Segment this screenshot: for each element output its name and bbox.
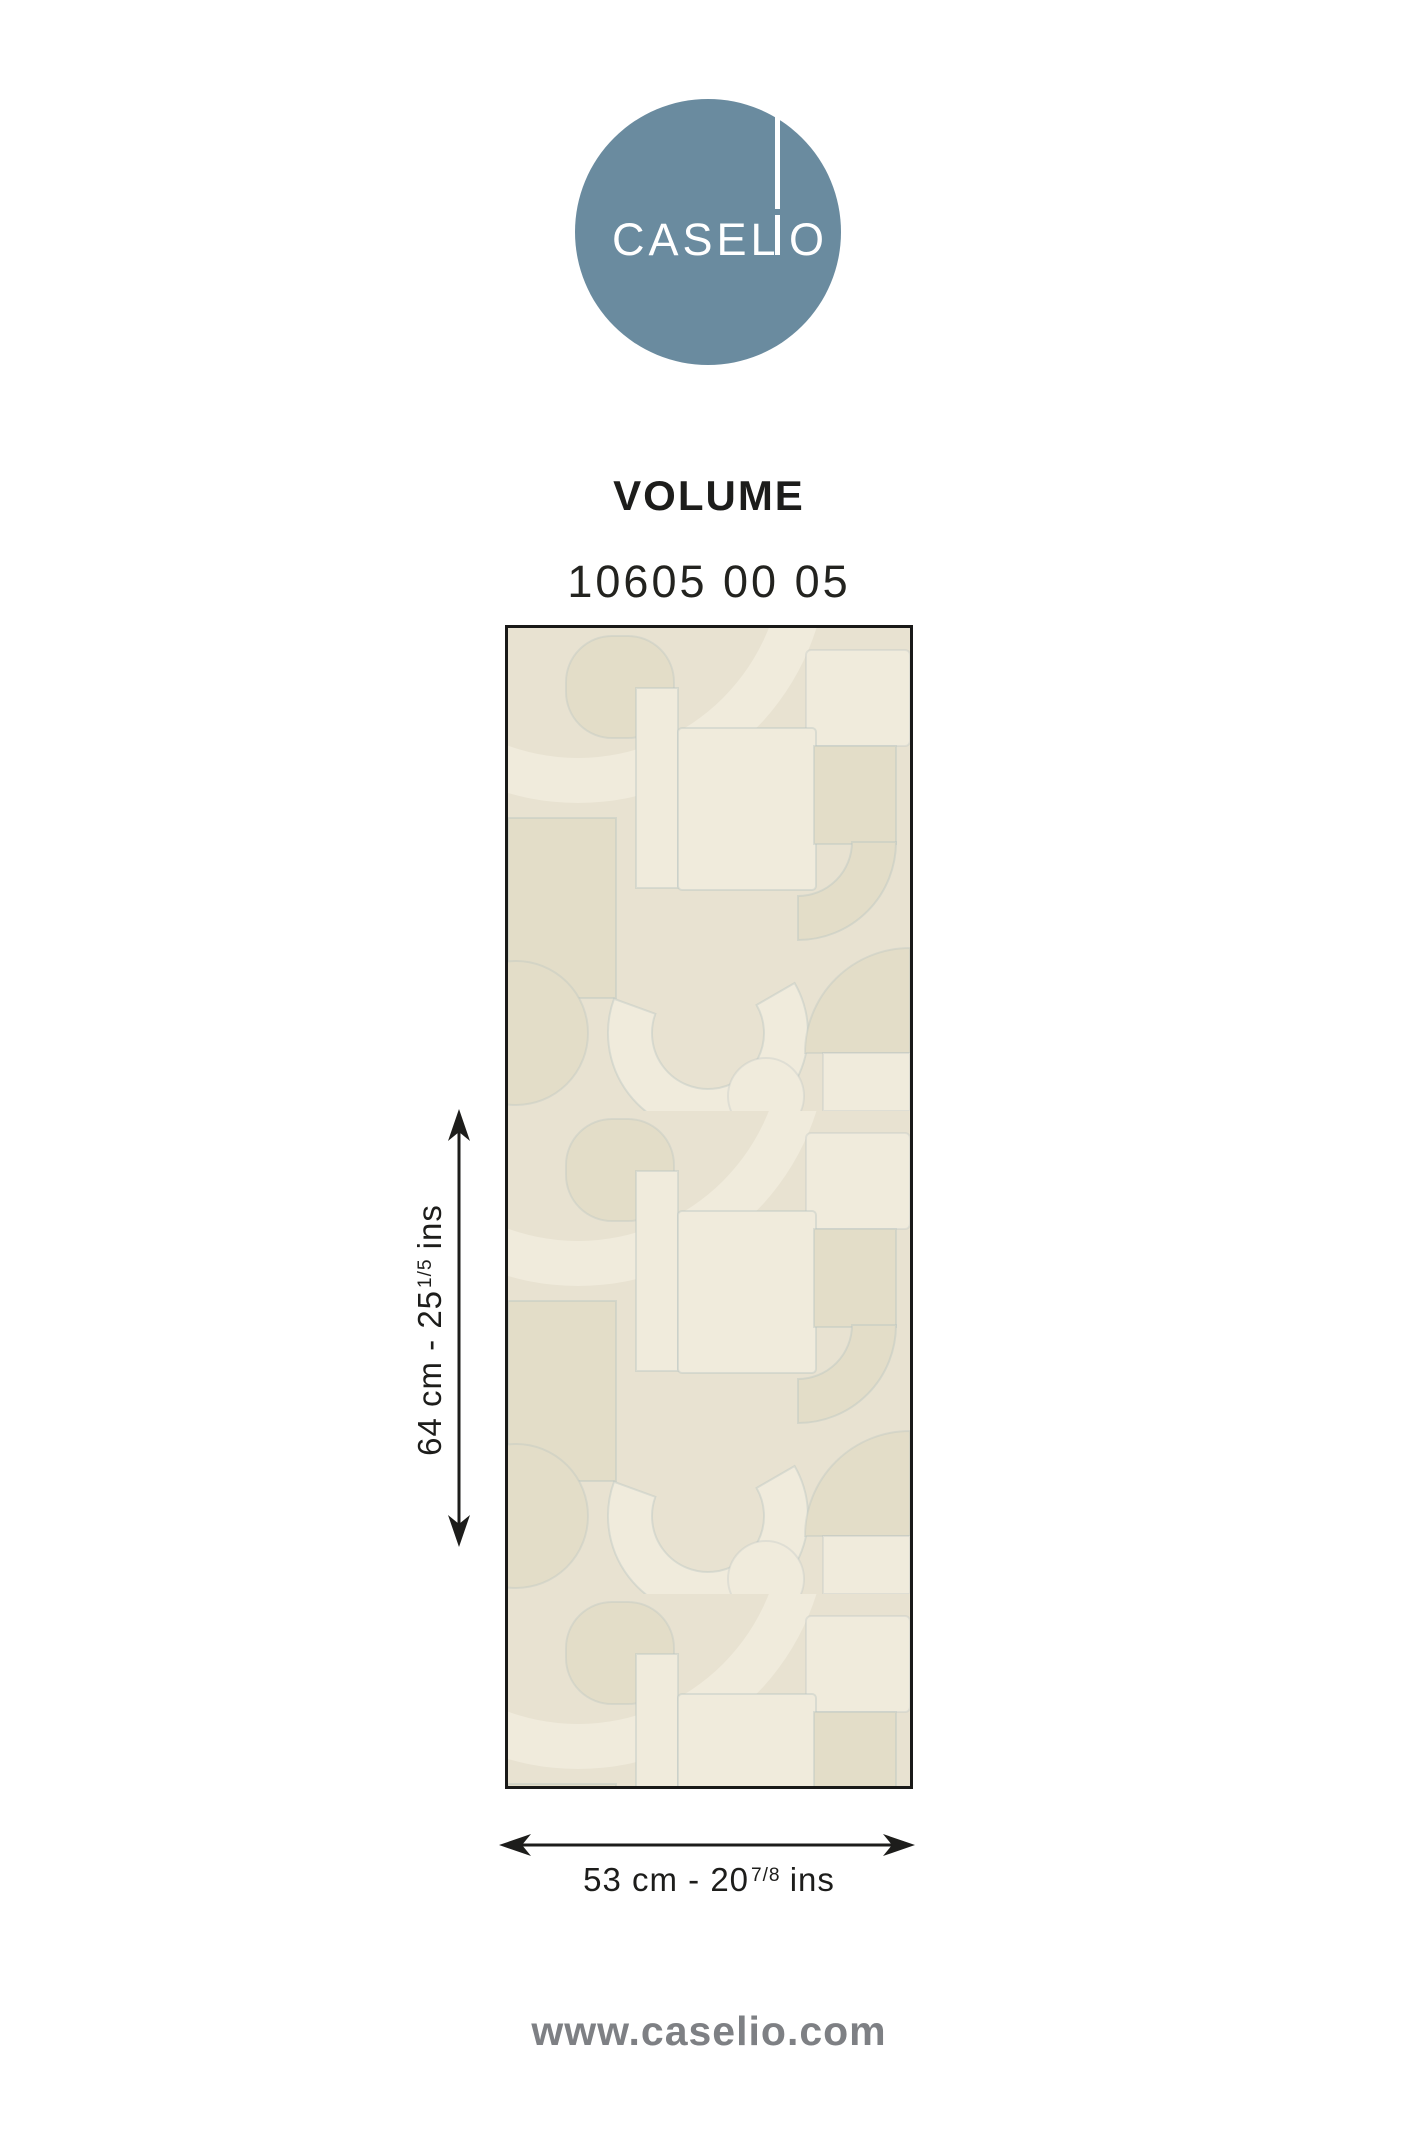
collection-title: VOLUME: [0, 472, 1418, 520]
wallpaper-pattern-image: [508, 628, 910, 1786]
caselio-logo: CASEL O: [572, 96, 844, 368]
logo-text-left: CASEL: [612, 214, 780, 265]
width-value: 53 cm - 20: [583, 1861, 749, 1898]
logo-i-stem-icon: [775, 116, 780, 209]
height-fraction: 1/5: [415, 1258, 436, 1288]
website-url: www.caselio.com: [0, 2008, 1418, 2055]
height-dimension-arrow-icon: [446, 1108, 472, 1548]
logo-text-right: O: [789, 214, 824, 265]
width-fraction: 7/8: [751, 1865, 781, 1886]
height-unit: ins: [411, 1204, 448, 1249]
product-reference: 10605 00 05: [0, 556, 1418, 608]
height-dimension-label: 64 cm - 251/5ins: [411, 1204, 449, 1456]
width-dimension-arrow-icon: [498, 1832, 916, 1858]
spec-sheet-page: CASEL O VOLUME 10605 00 05: [0, 0, 1418, 2134]
logo-i-dot-icon: [775, 215, 780, 255]
wallpaper-swatch: [505, 625, 913, 1789]
width-dimension-label: 53 cm - 207/8ins: [0, 1861, 1418, 1899]
height-value: 64 cm - 25: [411, 1290, 448, 1456]
width-unit: ins: [790, 1861, 835, 1898]
